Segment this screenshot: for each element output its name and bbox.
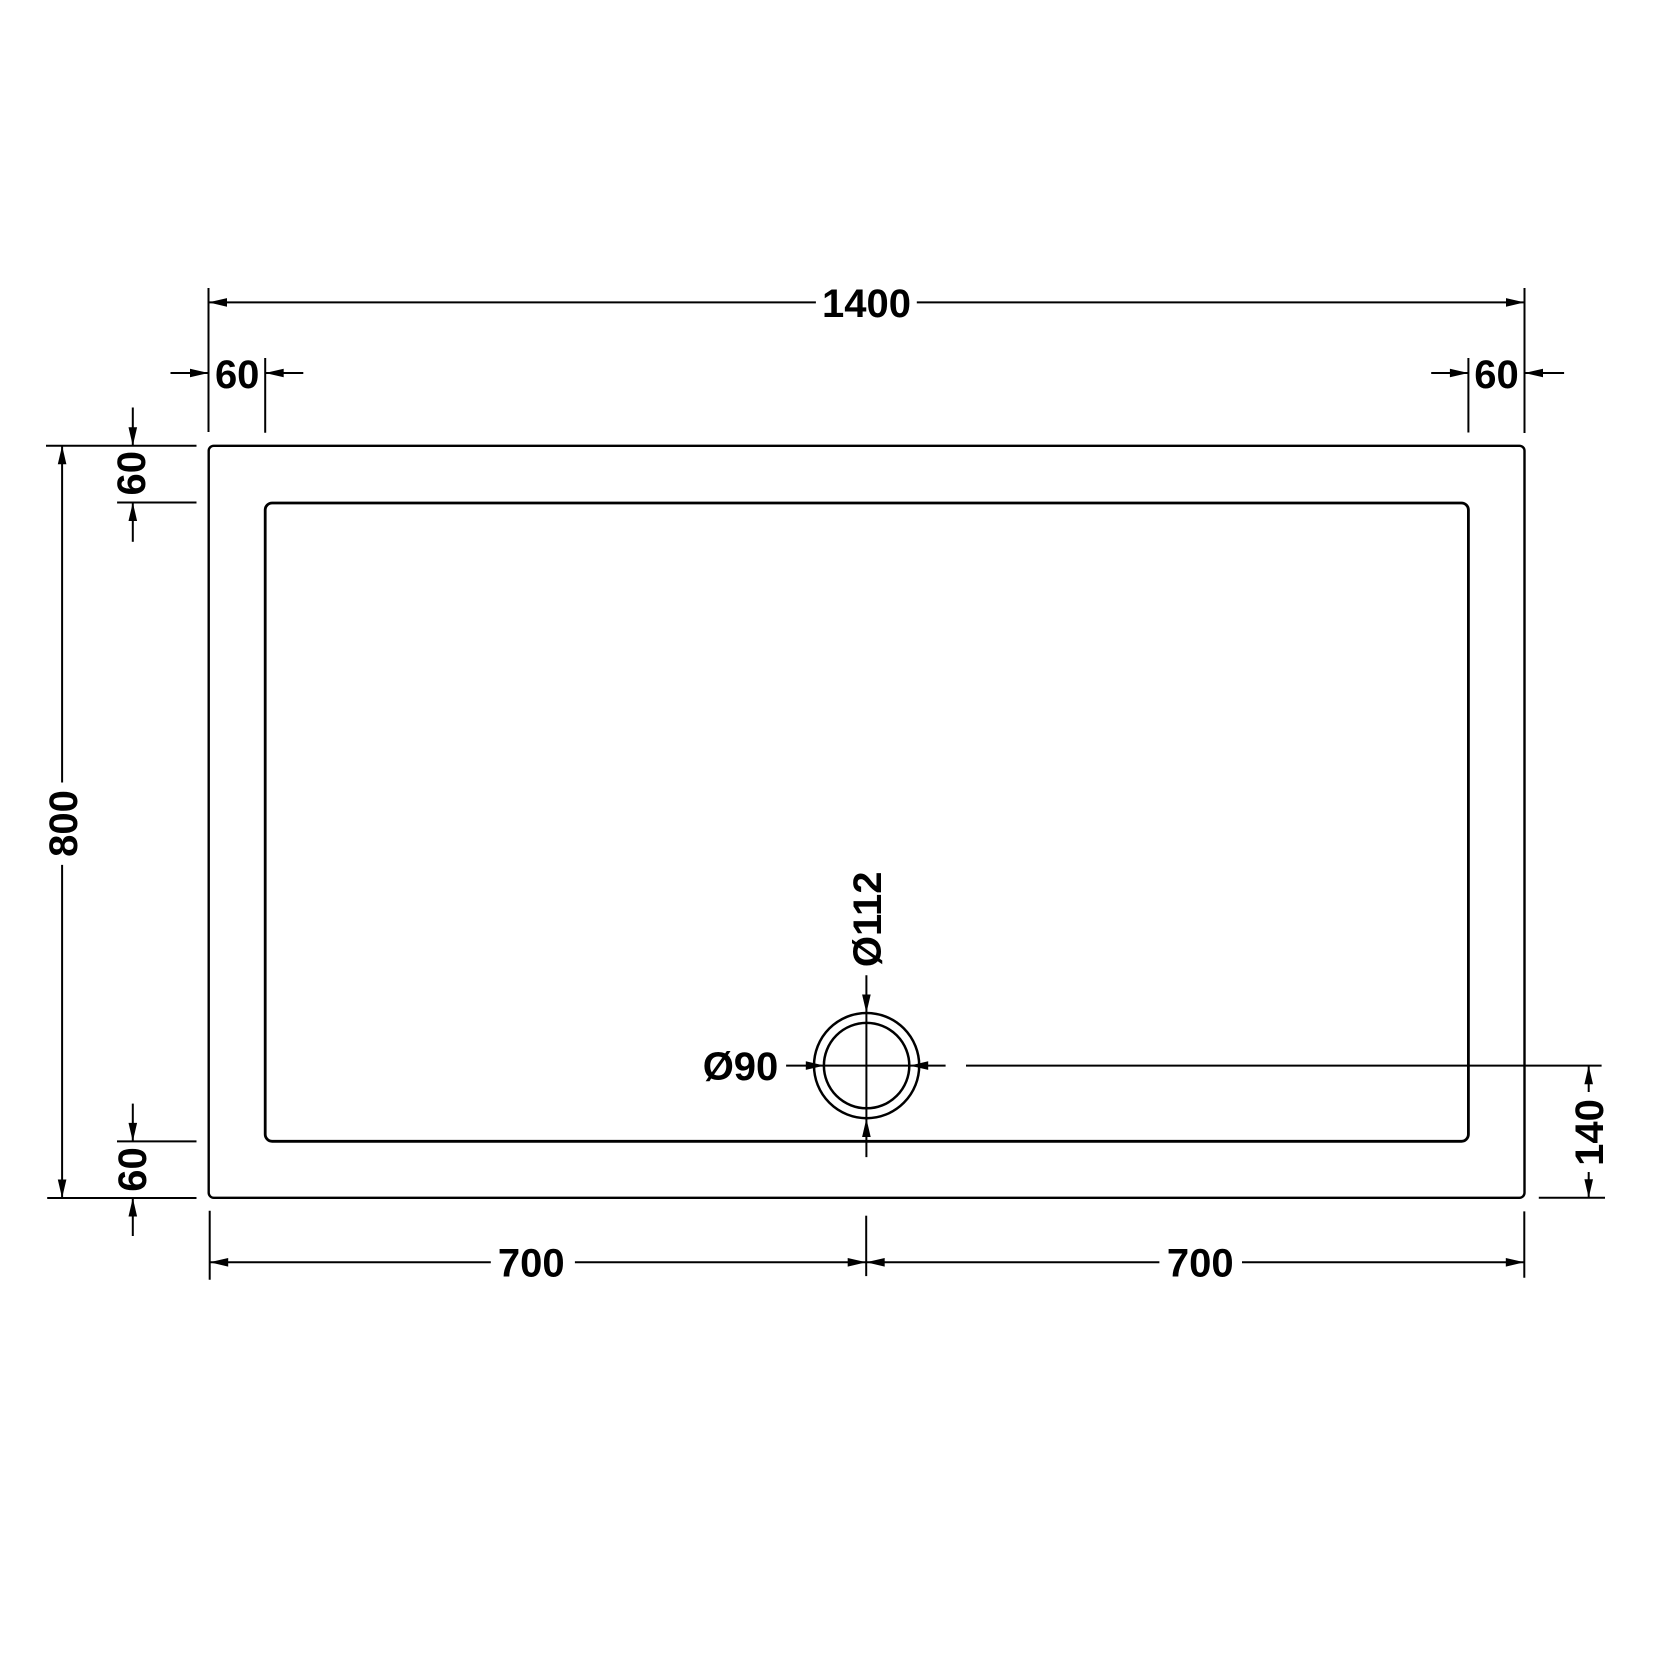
svg-text:60: 60 [111,1147,155,1192]
svg-text:800: 800 [42,790,86,857]
svg-text:60: 60 [215,353,260,397]
svg-text:Ø90: Ø90 [703,1045,779,1089]
svg-text:140: 140 [1568,1099,1612,1166]
svg-text:700: 700 [498,1242,565,1286]
svg-text:60: 60 [110,451,154,496]
svg-text:700: 700 [1167,1242,1234,1286]
svg-text:60: 60 [1474,353,1519,397]
svg-text:1400: 1400 [822,282,911,326]
svg-text:Ø112: Ø112 [846,871,890,967]
